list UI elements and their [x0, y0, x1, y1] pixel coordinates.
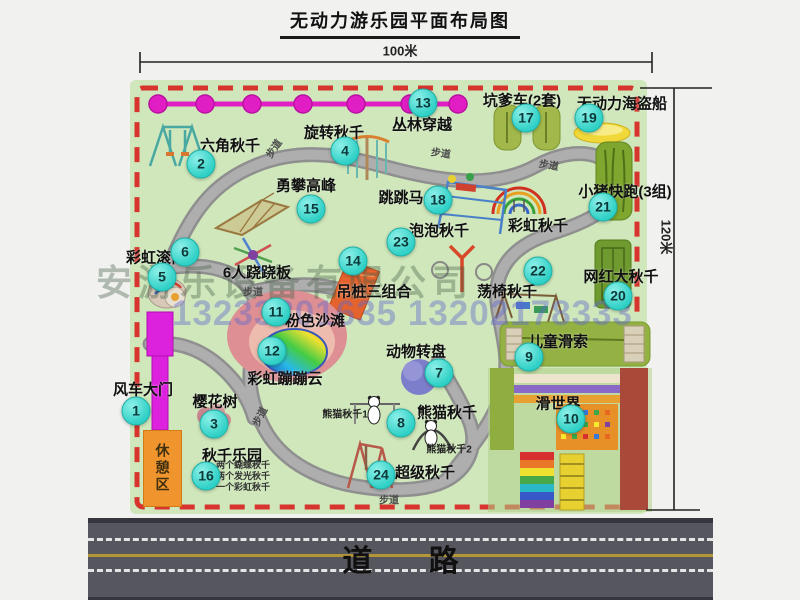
label-super-swing: 超级秋千: [395, 462, 455, 483]
swing-park-note-3: 一个彩虹秋千: [216, 482, 270, 493]
label-rainbow-bounce-cloud: 彩虹蹦蹦云: [247, 368, 322, 389]
park-layout-map: 无动力游乐园平面布局图 100米 120米: [0, 0, 800, 600]
path-label: 步道: [379, 492, 399, 507]
label-six-seesaw: 6人跷跷板: [223, 262, 291, 283]
path-label: 步道: [243, 284, 263, 299]
label-cherry-tree: 樱花树: [192, 391, 237, 412]
label-panda-swing-2: 熊猫秋千2: [426, 441, 472, 456]
width-dimension-label: 100米: [383, 41, 418, 60]
badge-21: 21: [589, 193, 618, 222]
path-label: 步道: [430, 143, 452, 161]
badge-10: 10: [557, 405, 586, 434]
badge-4: 4: [331, 137, 360, 166]
badge-19: 19: [575, 104, 604, 133]
road: 道 路: [88, 518, 713, 600]
badge-18: 18: [424, 186, 453, 215]
page-title: 无动力游乐园平面布局图: [0, 7, 800, 39]
label-rotating-swing: 旋转秋千: [304, 122, 364, 143]
badge-7: 7: [425, 359, 454, 388]
badge-14: 14: [339, 247, 368, 276]
badge-23: 23: [387, 228, 416, 257]
rest-area-zone: 休憩区: [143, 430, 182, 507]
road-label: 道 路: [318, 536, 482, 580]
badge-22: 22: [524, 257, 553, 286]
label-jump-horse: 跳跳马: [378, 187, 423, 208]
label-hanging-piles: 吊桩三组合: [336, 281, 411, 302]
path-label: 步道: [538, 155, 560, 173]
badge-17: 17: [512, 104, 541, 133]
badge-2: 2: [187, 150, 216, 179]
badge-6: 6: [171, 238, 200, 267]
label-panda-swing: 熊猫秋千: [417, 402, 477, 423]
label-climbing-peak: 勇攀高峰: [276, 175, 336, 196]
badge-24: 24: [367, 461, 396, 490]
badge-5: 5: [148, 263, 177, 292]
badge-3: 3: [200, 410, 229, 439]
label-panda-swing-1: 熊猫秋千1: [322, 406, 368, 421]
label-bubble-swing: 泡泡秋千: [409, 220, 469, 241]
swing-park-note-2: 两个发光秋千: [216, 471, 270, 482]
badge-16: 16: [192, 462, 221, 491]
swing-park-notes: 两个蝴蝶秋千 两个发光秋千 一个彩虹秋千: [216, 460, 270, 493]
rest-area-label: 休憩区: [153, 443, 173, 494]
label-chair-swing: 荡椅秋千: [477, 281, 537, 302]
badge-9: 9: [515, 343, 544, 372]
badge-12: 12: [258, 337, 287, 366]
swing-park-note-1: 两个蝴蝶秋千: [216, 460, 270, 471]
label-windmill-gate: 风车大门: [113, 379, 173, 400]
badge-1: 1: [122, 397, 151, 426]
badge-15: 15: [297, 195, 326, 224]
height-dimension-label: 120米: [658, 220, 677, 255]
badge-8: 8: [387, 409, 416, 438]
label-rainbow-swing: 彩虹秋千: [508, 215, 568, 236]
page-title-text: 无动力游乐园平面布局图: [280, 7, 520, 39]
label-pink-beach: 粉色沙滩: [285, 310, 345, 331]
badge-20: 20: [604, 282, 633, 311]
badge-13: 13: [409, 89, 438, 118]
badge-11: 11: [262, 298, 291, 327]
